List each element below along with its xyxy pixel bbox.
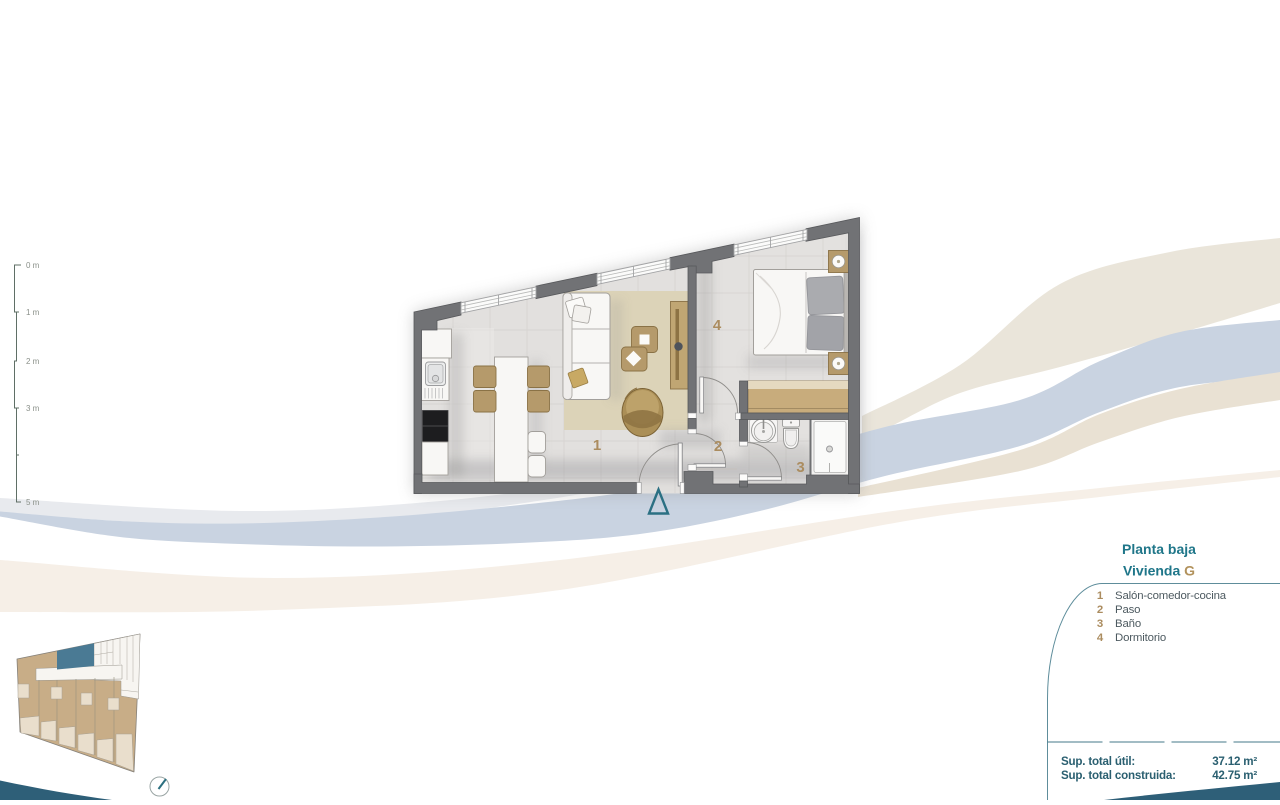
svg-text:3: 3 bbox=[796, 459, 804, 476]
svg-text:5 m: 5 m bbox=[26, 498, 40, 507]
svg-text:4: 4 bbox=[1097, 632, 1104, 644]
svg-text:Salón-comedor-cocina: Salón-comedor-cocina bbox=[1115, 590, 1227, 602]
svg-text:Baño: Baño bbox=[1115, 618, 1141, 630]
svg-text:4: 4 bbox=[713, 317, 722, 334]
svg-text:Sup. total construida:: Sup. total construida: bbox=[1061, 769, 1176, 782]
svg-text:Vivienda G: Vivienda G bbox=[1123, 563, 1195, 579]
svg-text:Sup. total útil:: Sup. total útil: bbox=[1061, 755, 1135, 768]
svg-text:42.75 m²: 42.75 m² bbox=[1212, 769, 1257, 782]
svg-text:1 m: 1 m bbox=[26, 308, 40, 317]
svg-text:3: 3 bbox=[1097, 618, 1103, 630]
svg-text:2 m: 2 m bbox=[26, 357, 40, 366]
svg-text:37.12 m²: 37.12 m² bbox=[1212, 755, 1257, 768]
svg-text:2: 2 bbox=[714, 438, 722, 455]
svg-text:Paso: Paso bbox=[1115, 604, 1140, 616]
svg-text:0 m: 0 m bbox=[26, 261, 40, 270]
svg-text:1: 1 bbox=[1097, 590, 1104, 602]
svg-text:Dormitorio: Dormitorio bbox=[1115, 632, 1166, 644]
svg-text:3 m: 3 m bbox=[26, 404, 40, 413]
svg-text:2: 2 bbox=[1097, 604, 1103, 616]
svg-text:Planta baja: Planta baja bbox=[1122, 541, 1196, 557]
svg-text:1: 1 bbox=[593, 437, 601, 454]
